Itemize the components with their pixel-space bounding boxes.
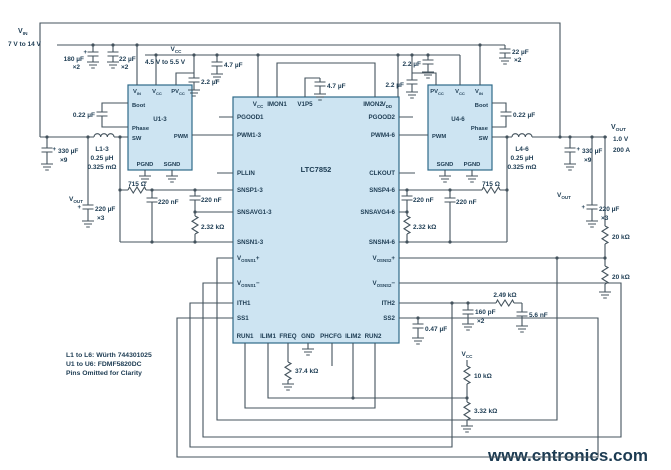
cap-22uF-left-qty: ×2: [121, 64, 129, 71]
resistor-2p32k-right-symbol: [404, 216, 410, 234]
res-2p32k-left: 2.32 kΩ: [201, 224, 224, 231]
res-20k-upper: 20 kΩ: [612, 234, 630, 241]
u4-name: U4-6: [451, 116, 465, 123]
cap-330uF-right-value: 330 µF: [582, 148, 602, 155]
note-line-2: U1 to U6: FDMF5820DC: [66, 361, 142, 368]
schematic-page: www.cntronics.com: [0, 0, 671, 470]
vout-main-voltage: 1.0 V: [613, 136, 629, 143]
resistor-2p49k-symbol: [496, 300, 514, 306]
ic-pin-ith2: ITH2: [382, 300, 396, 307]
res-10k: 10 kΩ: [474, 373, 492, 380]
cap-2p2uF-left: 2.2 µF: [201, 79, 220, 86]
cap-180uF-value: 180 µF: [64, 56, 84, 63]
ground-icon: [41, 164, 53, 170]
cap-4p7uF-left-symbol: [212, 62, 223, 66]
u4-pin-boot: Boot: [475, 103, 488, 109]
cap-220uF-right-qty: ×3: [601, 215, 609, 222]
cap-330uF-right-qty: ×9: [584, 157, 592, 164]
cap-0p47uF: 0.47 µF: [425, 326, 447, 333]
cap-4p7uF-center: 4.7 µF: [327, 83, 346, 90]
u1-name: U1-3: [153, 116, 167, 123]
watermark: www.cntronics.com: [487, 446, 648, 465]
ic-pin-phcfg: PHCFG: [320, 333, 342, 340]
u1-pin-pgnd: PGND: [137, 162, 154, 168]
cap-330uF-left-plus: +: [52, 147, 56, 153]
ic-pin-ith1: ITH1: [237, 300, 251, 307]
cap-22uF-right-symbol: [500, 49, 511, 53]
ic-pin-imon2: IMON2: [363, 101, 383, 108]
cap-330uF-right-symbol: [565, 148, 576, 152]
inductor-left-value: 0.25 µH: [91, 155, 114, 162]
cap-2p2uF-right-upper-symbol: [423, 60, 434, 64]
cap-180uF-qty: ×2: [73, 64, 81, 71]
res-20k-lower: 20 kΩ: [612, 274, 630, 281]
vcc-range: 4.5 V to 5.5 V: [145, 59, 186, 66]
ground-icon: [87, 62, 99, 68]
ic-pin-snsn4-6: SNSN4-6: [369, 239, 396, 246]
ic-pin-v1p5: V1P5: [297, 101, 313, 108]
cap-180uF-symbol: [88, 52, 99, 56]
cap-330uF-left-value: 330 µF: [58, 148, 78, 155]
resistor-3p32k-symbol: [464, 402, 470, 420]
ground-icon: [461, 426, 473, 432]
cap-180uF-plus: +: [83, 50, 87, 56]
u1-pin-vcc: VCC: [152, 89, 162, 96]
cap-220nF-left-1-symbol: [147, 198, 158, 202]
ground-icon: [166, 176, 178, 182]
ground-icon: [82, 221, 94, 227]
cap-2p2uF-right-upper: 2.2 µF: [402, 61, 421, 68]
cap-220uF-left-qty: ×3: [97, 215, 105, 222]
vout-main-label: VOUT: [611, 124, 626, 133]
inductor-right-value: 0.25 µH: [511, 155, 534, 162]
cap-0p22uF-right: 0.22 µF: [513, 112, 535, 119]
cap-0p22uF-right-symbol: [501, 112, 512, 116]
vout-main-current: 200 A: [613, 147, 630, 154]
ground-icon: [466, 176, 478, 182]
u1-pin-pwm: PWM: [174, 134, 188, 140]
ground-icon: [599, 292, 611, 298]
cap-220uF-right-symbol: [587, 205, 598, 209]
cap-5p6nF-symbol: [517, 312, 528, 316]
ic-pin-snsp4-6: SNSP4-6: [369, 187, 395, 194]
ground-icon: [412, 338, 424, 344]
cap-4p7uF-center-symbol: [315, 82, 326, 86]
ground-icon: [302, 349, 314, 355]
ic-pin-ss2: SS2: [383, 315, 395, 322]
cap-2p2uF-right-lower: 2.2 µF: [385, 82, 404, 89]
cap-0p22uF-left-symbol: [97, 112, 108, 116]
cap-5p6nF: 5.6 nF: [529, 312, 548, 319]
cap-160pF-value: 160 pF: [475, 309, 496, 316]
resistor-20k-upper-symbol: [602, 226, 608, 244]
resistor-20k-lower-symbol: [602, 266, 608, 284]
vout-left-label: VOUT: [69, 196, 83, 204]
resistor-37p4k-symbol: [285, 362, 291, 380]
cap-160pF-symbol: [463, 310, 474, 314]
ic-pin-freq: FREQ: [279, 333, 296, 340]
u1-pin-boot: Boot: [132, 103, 145, 109]
ic-pin-pgood2: PGOOD2: [369, 114, 396, 121]
inductor-left-name: L1-3: [95, 146, 109, 153]
vout-right-label: VOUT: [557, 192, 571, 200]
cap-2p2uF-left-symbol: [189, 78, 200, 82]
res-715-right: 715 Ω: [482, 181, 500, 188]
cap-220uF-left-plus: +: [77, 205, 81, 211]
resistor-2p32k-left-symbol: [192, 216, 198, 234]
ic-pin-run1: RUN1: [237, 333, 254, 340]
cap-160pF-qty: ×2: [477, 318, 485, 325]
vcc-bottom-label: VCC: [462, 351, 474, 359]
u4-pin-pgnd: PGND: [464, 162, 481, 168]
cap-220uF-left-value: 220 µF: [95, 206, 115, 213]
inductor-l1-3-symbol: [94, 134, 114, 137]
note-line-3: Pins Omitted for Clarity: [66, 370, 142, 377]
ground-icon: [586, 221, 598, 227]
ground-icon: [406, 92, 418, 98]
ic-pin-gnd: GND: [301, 333, 315, 340]
ground-icon: [439, 176, 451, 182]
cap-0p22uF-left: 0.22 µF: [73, 112, 95, 119]
inductor-right-name: L4-6: [515, 146, 529, 153]
watermark-layer: www.cntronics.com: [487, 446, 648, 465]
ic-pin-pwm1-3: PWM1-3: [237, 132, 262, 139]
u4-pin-vin: VIN: [475, 89, 483, 96]
cap-330uF-left-qty: ×9: [60, 157, 68, 164]
u4-pin-sw: SW: [479, 136, 489, 142]
u1-pin-sw: SW: [132, 136, 142, 142]
vin-label: VIN: [18, 28, 28, 37]
res-2p32k-right: 2.32 kΩ: [413, 224, 436, 231]
cap-220nF-right-1: 220 nF: [456, 199, 477, 206]
cap-220nF-right-2: 220 nF: [413, 197, 434, 204]
cap-220uF-right-plus: +: [581, 205, 585, 211]
power-block-bodies: [128, 85, 492, 343]
u4-pin-pvcc: PVCC: [430, 89, 444, 96]
ground-icon: [564, 164, 576, 170]
ic-pin-pgood1: PGOOD1: [237, 114, 264, 121]
ltc7852-application-schematic: www.cntronics.com: [0, 0, 671, 470]
res-715-left: 715 Ω: [128, 181, 146, 188]
ic-pin-ilim1: ILIM1: [260, 333, 276, 340]
cap-22uF-left-symbol: [108, 52, 119, 56]
cap-22uF-right-value: 22 µF: [512, 49, 529, 56]
ic-pin-snsavg1-3: SNSAVG1-3: [237, 209, 272, 216]
ic-pin-imon1: IMON1: [267, 101, 287, 108]
cap-220nF-right-1-symbol: [445, 198, 456, 202]
u1-pin-sgnd: SGND: [164, 162, 181, 168]
u1-pin-pvcc: PVCC: [171, 89, 185, 96]
ic-pin-snsp1-3: SNSP1-3: [237, 187, 263, 194]
cap-2p2uF-right-lower-symbol: [407, 80, 418, 84]
vin-range: 7 V to 14 V: [8, 41, 42, 48]
cap-22uF-left-value: 22 µF: [119, 56, 136, 63]
cap-220uF-left-symbol: [83, 205, 94, 209]
ground-icon: [282, 384, 294, 390]
ic-pin-pwm4-6: PWM4-6: [371, 132, 396, 139]
u1-pin-phase: Phase: [132, 126, 150, 132]
u4-pin-pwm: PWM: [432, 134, 446, 140]
inductor-right-dcr: 0.325 mΩ: [507, 164, 536, 171]
ic-pin-run2: RUN2: [365, 333, 382, 340]
u4-pin-sgnd: SGND: [437, 162, 454, 168]
ic-pin-clkout: CLKOUT: [369, 170, 395, 177]
cap-330uF-right-plus: +: [576, 147, 580, 153]
inductor-l4-6-symbol: [512, 134, 532, 137]
cap-220nF-left-2-symbol: [190, 196, 201, 200]
res-2p49k: 2.49 kΩ: [493, 292, 516, 299]
ic-pin-pllin: PLLIN: [237, 170, 255, 177]
ground-icon: [462, 324, 474, 330]
u4-pin-vcc: VCC: [455, 89, 465, 96]
ic-part-number: LTC7852: [301, 165, 332, 174]
ground-icon: [107, 62, 119, 68]
cap-220nF-left-2: 220 nF: [201, 197, 222, 204]
ic-pin-ilim2: ILIM2: [345, 333, 361, 340]
resistor-10k-symbol: [464, 366, 470, 384]
vcc-label: VCC: [171, 46, 183, 54]
cap-220nF-right-2-symbol: [402, 196, 413, 200]
cap-0p47uF-symbol: [413, 324, 424, 328]
res-3p32k: 3.32 kΩ: [474, 408, 497, 415]
ic-pin-snsn1-3: SNSN1-3: [237, 239, 264, 246]
u1-pin-vin: VIN: [133, 89, 141, 96]
res-37p4k: 37.4 kΩ: [295, 368, 318, 375]
ic-pin-ss1: SS1: [237, 315, 249, 322]
note-line-1: L1 to L6: Würth 744301025: [66, 352, 152, 359]
inductor-left-dcr: 0.325 mΩ: [87, 164, 116, 171]
ground-icon: [516, 326, 528, 332]
cap-22uF-right-qty: ×2: [514, 57, 522, 64]
cap-220nF-left-1: 220 nF: [158, 199, 179, 206]
ground-icon: [499, 58, 511, 64]
ic-pin-snsavg4-6: SNSAVG4-6: [360, 209, 395, 216]
cap-330uF-left-symbol: [42, 148, 53, 152]
u4-pin-phase: Phase: [471, 126, 489, 132]
cap-220uF-right-value: 220 µF: [599, 206, 619, 213]
cap-4p7uF-left: 4.7 µF: [224, 62, 243, 69]
